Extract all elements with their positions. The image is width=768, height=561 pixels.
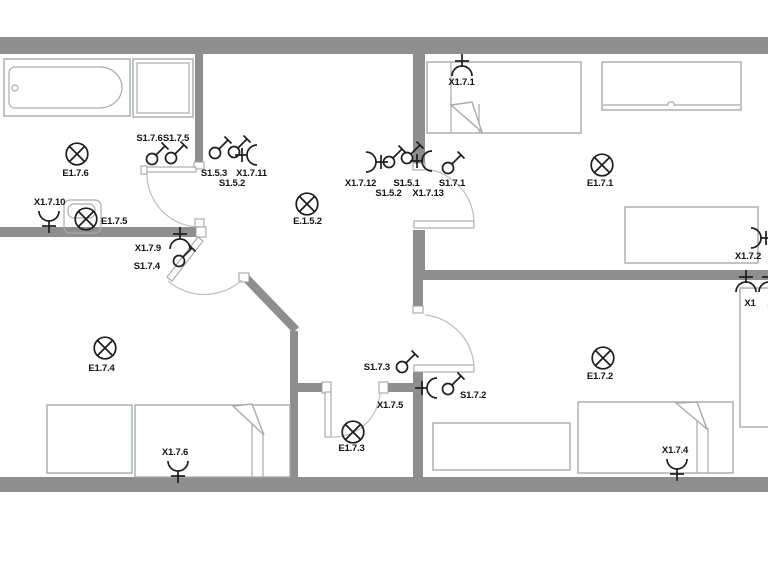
light-label: E1.7.5 bbox=[101, 216, 128, 227]
desk-bottom-left bbox=[47, 405, 132, 473]
bed-bottom-left bbox=[135, 405, 290, 477]
floor-plan-canvas: E1.7.6 E1.7.5 E.1.5.2 E1.7.1 E1.7.2 E1.7… bbox=[0, 0, 768, 561]
switch-label: S1.7.3 bbox=[364, 362, 390, 373]
labels: E1.7.6 E1.7.5 E.1.5.2 E1.7.1 E1.7.2 E1.7… bbox=[34, 77, 768, 458]
wall-bathroom-right bbox=[195, 54, 203, 163]
door-swing-left-room bbox=[168, 280, 242, 294]
door-swing-bedroom-bottom-right bbox=[425, 315, 474, 367]
light-icon-e152 bbox=[296, 193, 318, 215]
light-icon-e171 bbox=[591, 154, 613, 176]
shower bbox=[133, 59, 193, 117]
bed-bottom-right bbox=[578, 402, 733, 473]
socket-label: X1.7.2 bbox=[735, 251, 761, 262]
wall-outer-bottom bbox=[0, 477, 768, 492]
door-frame bbox=[413, 306, 423, 313]
socket-label: X1 bbox=[744, 298, 756, 309]
light-icon-e173 bbox=[342, 421, 364, 443]
furniture bbox=[4, 59, 768, 477]
socket-label: X1.7.12 bbox=[345, 178, 376, 189]
wall-hall-right-lower bbox=[413, 280, 423, 308]
wall-hall-right-mid bbox=[413, 230, 425, 270]
switch-icon-s153 bbox=[210, 137, 232, 159]
switch-label: S1.5.2 bbox=[375, 188, 401, 199]
wardrobe bbox=[602, 62, 741, 110]
light-icon-e176 bbox=[66, 143, 88, 165]
door-frame bbox=[196, 227, 206, 237]
light-label: E.1.5.2 bbox=[293, 216, 322, 227]
light-label: E1.7.1 bbox=[587, 178, 614, 189]
socket-icon-x1712 bbox=[366, 152, 388, 172]
wall-bedrooms-divider bbox=[413, 270, 768, 280]
light-icon-e174 bbox=[94, 337, 116, 359]
switch-icon-s176 bbox=[147, 143, 169, 165]
floor-plan: E1.7.6 E1.7.5 E.1.5.2 E1.7.1 E1.7.2 E1.7… bbox=[0, 0, 768, 561]
switch-icon-s171 bbox=[443, 152, 465, 174]
door-leaf-bedroom-top-right bbox=[414, 221, 474, 228]
light-label: E1.7.4 bbox=[88, 363, 115, 374]
door-leaf-bathroom bbox=[147, 167, 196, 172]
desk-bottom-right bbox=[433, 423, 570, 470]
door-swing-bathroom bbox=[147, 174, 200, 227]
socket-label: X1.7.4 bbox=[662, 445, 689, 456]
light-label: E1.7.2 bbox=[587, 371, 613, 382]
socket-label: X1.7.13 bbox=[412, 188, 443, 199]
door-leaf-small-room bbox=[325, 392, 331, 437]
door-frame bbox=[195, 219, 204, 227]
switch-icon-s175 bbox=[166, 142, 188, 164]
door-leaf-bedroom-bottom-right bbox=[414, 365, 474, 372]
switch-label: S1.7.2 bbox=[460, 390, 486, 401]
socket-label: X1.7.11 bbox=[236, 168, 268, 179]
socket-label: X1.7.6 bbox=[162, 447, 188, 458]
socket-label: X1.7.9 bbox=[135, 243, 161, 254]
door-frame bbox=[379, 382, 388, 393]
wall-bathroom-bottom bbox=[0, 227, 205, 237]
switch-label: S1.7.5 bbox=[163, 133, 190, 144]
wall-light-box-inner bbox=[68, 204, 95, 218]
bed-top-right bbox=[427, 62, 581, 133]
wall-outer-top bbox=[0, 37, 768, 54]
switch-label: S1.7.6 bbox=[136, 133, 162, 144]
switch-label: S1.5.2 bbox=[219, 178, 245, 189]
light-icon-e172 bbox=[592, 347, 614, 369]
socket-label: X1.7.1 bbox=[448, 77, 475, 88]
light-label: E1.7.6 bbox=[62, 168, 88, 179]
light-icon-e175 bbox=[75, 208, 97, 230]
socket-label: X1.7.5 bbox=[377, 400, 404, 411]
wall-left-room-right bbox=[290, 331, 298, 477]
light-label: E1.7.3 bbox=[338, 443, 364, 454]
door-frame bbox=[322, 382, 331, 393]
door-frame bbox=[141, 166, 147, 174]
switch-label: S1.7.4 bbox=[134, 261, 161, 272]
socket-label: X1.7.10 bbox=[34, 197, 65, 208]
wall-diagonal bbox=[241, 273, 299, 333]
